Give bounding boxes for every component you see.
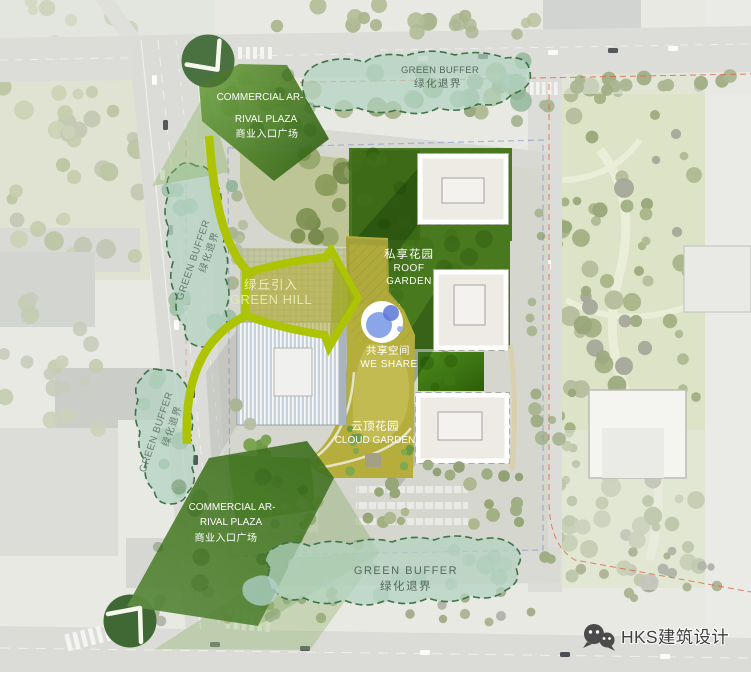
svg-text:云顶花园: 云顶花园 (351, 420, 399, 433)
svg-text:绿化退界: 绿化退界 (414, 78, 462, 90)
svg-text:RIVAL PLAZA: RIVAL PLAZA (235, 114, 298, 125)
svg-text:GREEN HILL: GREEN HILL (230, 292, 312, 307)
svg-text:GARDEN: GARDEN (386, 276, 432, 287)
svg-text:ROOF: ROOF (394, 263, 425, 274)
svg-text:HKS建筑设计: HKS建筑设计 (621, 627, 729, 647)
svg-text:私享花园: 私享花园 (384, 248, 434, 261)
svg-text:商业入口广场: 商业入口广场 (236, 128, 299, 140)
svg-text:COMMERCIAL AR-: COMMERCIAL AR- (189, 502, 276, 513)
svg-text:RIVAL PLAZA: RIVAL PLAZA (200, 517, 263, 528)
svg-text:COMMERCIAL AR-: COMMERCIAL AR- (217, 92, 304, 103)
svg-text:GREEN BUFFER: GREEN BUFFER (354, 565, 458, 577)
svg-text:共享空间: 共享空间 (366, 345, 410, 357)
svg-text:CLOUD GARDEN: CLOUD GARDEN (335, 435, 416, 446)
svg-text:商业入口广场: 商业入口广场 (195, 532, 258, 544)
svg-text:绿丘引入: 绿丘引入 (244, 278, 298, 292)
svg-text:绿化退界: 绿化退界 (380, 580, 432, 593)
svg-text:GREEN BUFFER: GREEN BUFFER (401, 65, 479, 76)
svg-text:WE SHARE: WE SHARE (360, 359, 417, 370)
